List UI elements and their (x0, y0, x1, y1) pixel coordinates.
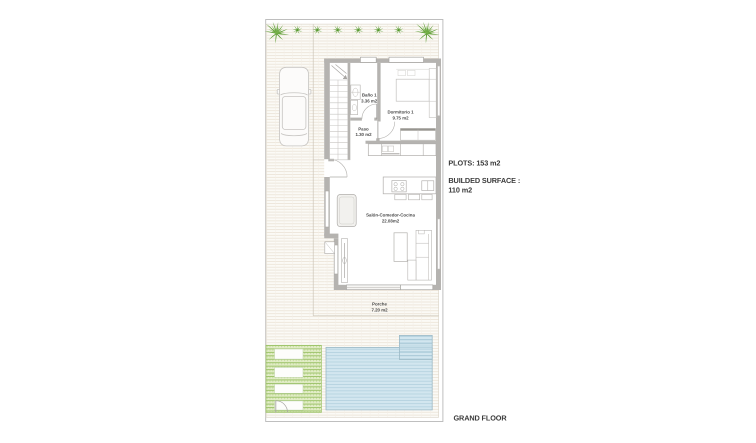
svg-text:7.20 m2: 7.20 m2 (371, 307, 388, 312)
svg-text:9.75 m2: 9.75 m2 (392, 115, 409, 120)
svg-text:22.08m2: 22.08m2 (382, 218, 400, 223)
svg-text:Baño 1: Baño 1 (362, 93, 377, 98)
svg-text:GRAND FLOOR: GRAND FLOOR (454, 414, 508, 423)
svg-text:Paso: Paso (358, 126, 369, 131)
svg-text:Porche: Porche (372, 302, 387, 307)
svg-text:1.30 m2: 1.30 m2 (355, 132, 372, 137)
svg-text:BUILDED SURFACE :: BUILDED SURFACE : (448, 176, 520, 185)
svg-text:3.36 m2: 3.36 m2 (361, 98, 378, 103)
svg-text:Salón-Comedor-Cocina: Salón-Comedor-Cocina (366, 212, 415, 217)
svg-text:PLOTS: 153 m2: PLOTS: 153 m2 (448, 158, 500, 167)
svg-text:Dormitorio 1: Dormitorio 1 (387, 110, 414, 115)
svg-text:110 m2: 110 m2 (448, 185, 472, 194)
